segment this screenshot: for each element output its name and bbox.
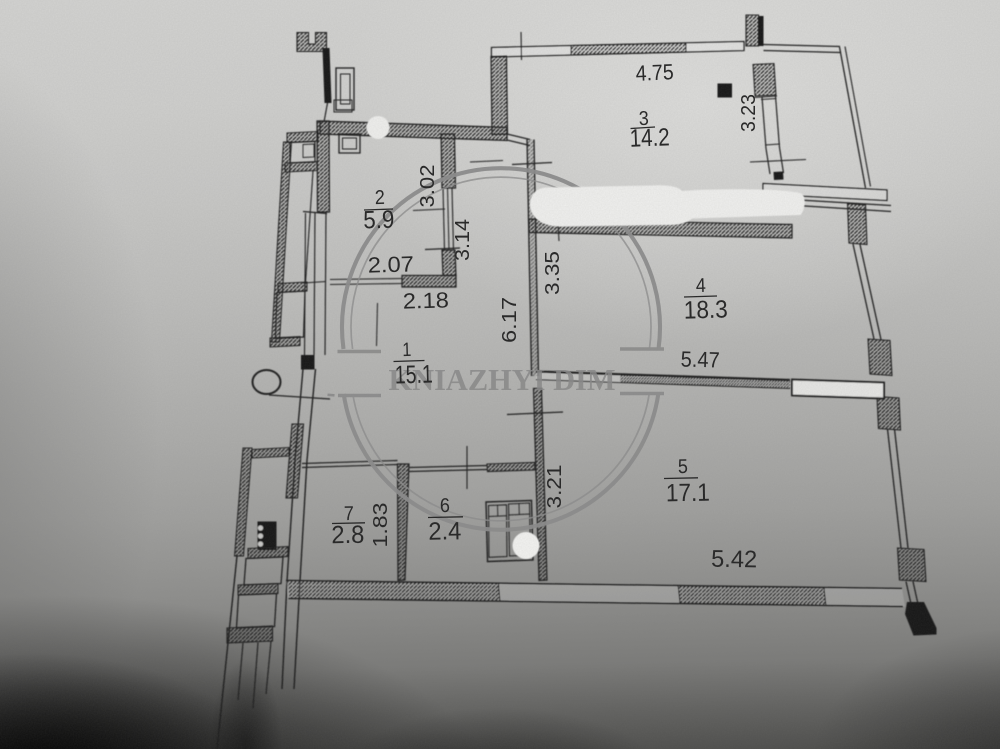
svg-text:3.23: 3.23 xyxy=(738,94,760,132)
svg-text:6.17: 6.17 xyxy=(499,297,521,343)
svg-text:KNIAZHYI DIM: KNIAZHYI DIM xyxy=(389,362,616,397)
svg-text:6: 6 xyxy=(440,495,450,517)
svg-text:17.1: 17.1 xyxy=(666,479,710,508)
svg-text:2.8: 2.8 xyxy=(331,521,364,550)
svg-text:2.18: 2.18 xyxy=(402,287,449,313)
svg-text:2.07: 2.07 xyxy=(367,251,414,277)
svg-text:5.47: 5.47 xyxy=(680,346,720,372)
svg-text:14.2: 14.2 xyxy=(629,123,670,152)
svg-text:15.1: 15.1 xyxy=(394,361,433,390)
svg-text:5: 5 xyxy=(678,456,688,478)
svg-text:3.14: 3.14 xyxy=(452,219,474,261)
svg-text:3.21: 3.21 xyxy=(544,465,566,509)
svg-text:2.4: 2.4 xyxy=(428,517,462,546)
svg-text:3.35: 3.35 xyxy=(542,251,564,295)
svg-text:1: 1 xyxy=(402,339,412,361)
svg-text:4.75: 4.75 xyxy=(635,59,674,86)
svg-text:3: 3 xyxy=(638,108,649,130)
svg-text:3.02: 3.02 xyxy=(417,165,439,208)
svg-text:5.42: 5.42 xyxy=(711,546,757,574)
svg-text:7: 7 xyxy=(344,503,354,525)
svg-text:5.9: 5.9 xyxy=(363,206,395,235)
svg-text:1.83: 1.83 xyxy=(370,503,392,548)
svg-text:18.3: 18.3 xyxy=(683,295,728,324)
svg-text:4: 4 xyxy=(696,275,707,297)
svg-text:2: 2 xyxy=(375,187,386,209)
